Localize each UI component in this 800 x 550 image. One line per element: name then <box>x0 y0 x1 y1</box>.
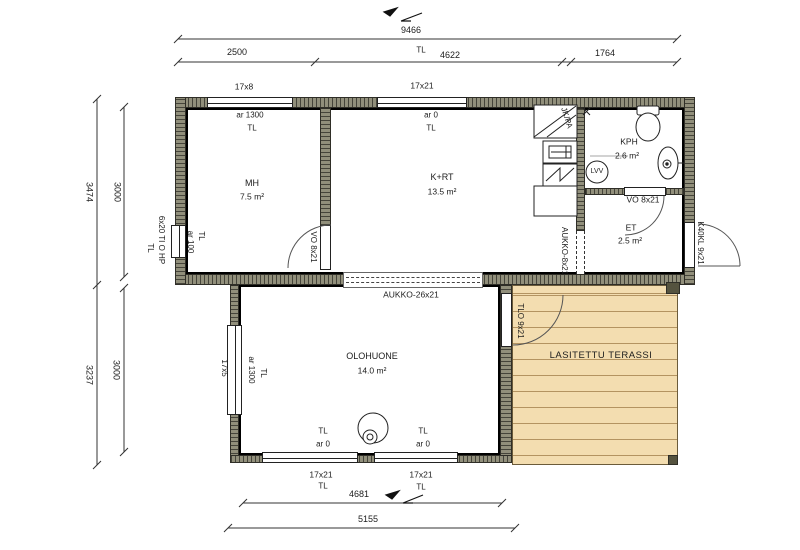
room-name-mh: MH <box>245 179 259 189</box>
dim-bottom-outer: 5155 <box>358 515 378 525</box>
wall-mh-krt <box>320 108 331 226</box>
door-leaf-entry <box>684 222 695 268</box>
label-window-17x5: 17x5 <box>220 359 228 376</box>
label-mh-window-tl: TL <box>146 243 154 252</box>
room-name-kph: KPH <box>620 137 637 146</box>
terrace-post-bottom <box>668 455 678 465</box>
label-window-17x21-top: 17x21 <box>410 81 433 90</box>
dim-top-total: 9466 <box>401 26 421 36</box>
label-opening-kitchen: AUKKO-8x21 <box>560 227 568 275</box>
window-17x21-top <box>377 97 467 108</box>
label-door-entry: K40KL 9x21 <box>696 221 704 264</box>
room-name-terassi: LASITETTU TERASSI <box>550 351 653 361</box>
room-area-mh: 7.5 m² <box>240 192 264 201</box>
section-arrow-bottom <box>386 491 423 503</box>
door-leaf-mh <box>320 225 331 270</box>
dim-top-mid-tl: TL <box>416 47 425 56</box>
label-mh-window-type: 6x20 TI O HP <box>157 216 165 264</box>
room-name-krt: K+RT <box>430 173 453 183</box>
label-door-terrace: TLO 9x21 <box>516 303 524 338</box>
label-krt-ar: ar 0 <box>424 112 438 121</box>
label-oloh-tl-right: TL <box>418 428 427 437</box>
room-area-olohuone: 14.0 m² <box>358 366 387 375</box>
label-window-br-tl: TL <box>416 484 425 493</box>
label-mh-ar: ar 1300 <box>236 112 263 121</box>
section-arrow-top <box>384 8 422 21</box>
label-window-bl: 17x21 <box>309 470 332 479</box>
label-window-br: 17x21 <box>409 470 432 479</box>
room-area-krt: 13.5 m² <box>428 187 457 196</box>
window-17x8 <box>207 97 293 108</box>
window-mh-left <box>171 225 186 258</box>
terrace-deck <box>512 285 678 465</box>
wall-kitchen <box>576 108 585 231</box>
label-oloh-ar-right: ar 0 <box>416 441 430 450</box>
room-area-et: 2.5 m² <box>618 236 642 245</box>
label-opening-living: AUKKO-26x21 <box>383 290 439 299</box>
room-area-kph: 2.6 m² <box>615 151 639 160</box>
label-krt-tl: TL <box>426 125 435 134</box>
room-name-et: ET <box>626 223 637 232</box>
dim-bottom-inner: 4681 <box>349 490 369 500</box>
opening-living <box>343 272 483 288</box>
dim-side-lower-inner: 3000 <box>112 360 121 380</box>
label-water-heater: LVV <box>591 168 604 176</box>
label-living-left-ar: ar 1300 <box>247 356 255 383</box>
label-door-kph: VO 8x21 <box>626 195 659 204</box>
opening-kitchen <box>576 231 585 274</box>
window-17x5 <box>227 325 242 415</box>
window-17x21-bottom-left <box>262 452 358 463</box>
window-17x21-bottom-right <box>374 452 458 463</box>
label-living-left-tl: TL <box>259 368 267 377</box>
label-mh-window-ar: ar 100 <box>186 231 194 254</box>
dim-top-mid: 4622 <box>440 51 460 61</box>
label-mh-tl: TL <box>247 125 256 134</box>
dim-top-right: 1764 <box>595 49 615 59</box>
label-oloh-tl-left: TL <box>318 428 327 437</box>
room-name-olohuone: OLOHUONE <box>346 352 398 362</box>
dim-side-lower-outer: 3237 <box>85 365 94 385</box>
door-leaf-terrace <box>501 293 512 347</box>
dim-top-left: 2500 <box>227 48 247 58</box>
label-door-mh: VO 8x21 <box>309 231 317 262</box>
floor-plan: 9466 2500 TL 4622 1764 3474 3000 3237 30… <box>0 0 800 550</box>
label-oloh-ar-left: ar 0 <box>316 441 330 450</box>
label-window-bl-tl: TL <box>318 483 327 492</box>
dim-side-upper-outer: 3474 <box>85 182 94 202</box>
label-mh-window-ar-tl: TL <box>197 231 205 240</box>
dim-side-upper-inner: 3000 <box>113 182 122 202</box>
terrace-post-top <box>666 282 680 294</box>
label-window-17x8: 17x8 <box>235 82 253 91</box>
